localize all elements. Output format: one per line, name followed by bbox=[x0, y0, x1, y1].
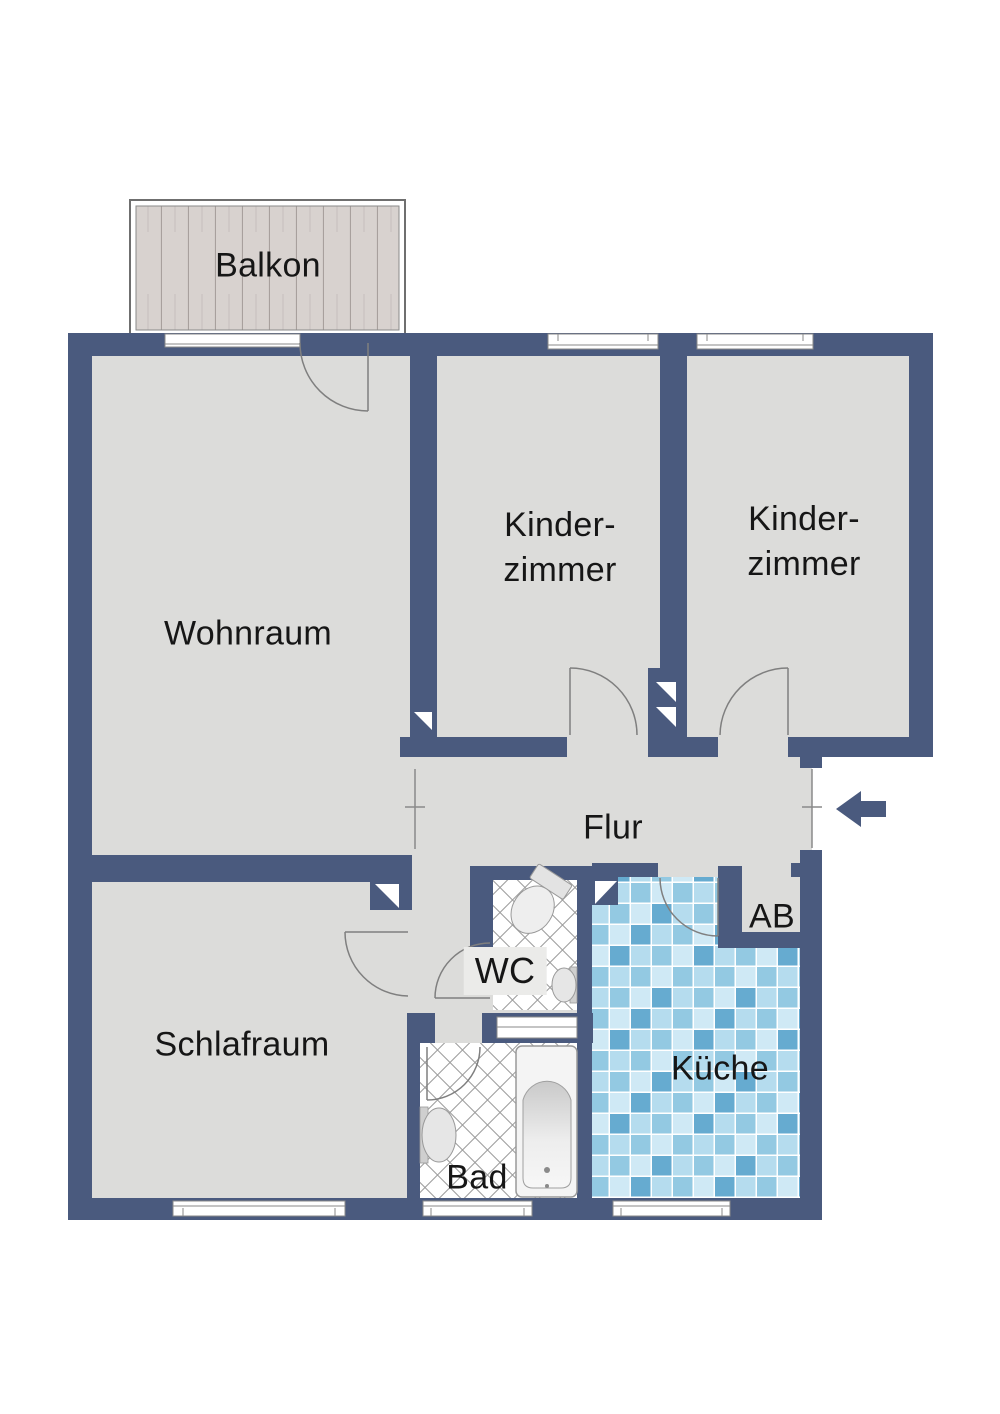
wall-ab-corner-stub bbox=[791, 863, 803, 877]
bathtub bbox=[516, 1046, 577, 1197]
label-kinderzimmer-mitte-line2: zimmer bbox=[503, 548, 616, 593]
window-kueche bbox=[613, 1201, 730, 1216]
floorplan-drawing bbox=[0, 0, 1000, 1414]
window-kinderzimmer2 bbox=[697, 334, 813, 349]
wall-wohnraum-right-foot bbox=[400, 737, 437, 757]
label-bad: Bad bbox=[446, 1159, 507, 1198]
label-balkon: Balkon bbox=[215, 247, 321, 286]
wall-outer-right-lower bbox=[800, 850, 822, 1220]
label-kinderzimmer-rechts-line2: zimmer bbox=[747, 542, 860, 587]
wall-between-kinderzimmer bbox=[660, 356, 687, 672]
wc-sink bbox=[552, 967, 577, 1003]
label-kinderzimmer-rechts-line1: Kinder- bbox=[747, 497, 860, 542]
wall-kinderzimmer1-bottom bbox=[437, 737, 567, 757]
entrance-arrow-icon bbox=[836, 791, 886, 827]
floorplan: Balkon Wohnraum Kinder- zimmer Kinder- z… bbox=[0, 0, 1000, 1414]
window-balkon bbox=[165, 334, 300, 347]
window-kinderzimmer1 bbox=[548, 334, 658, 349]
wall-kueche-top bbox=[592, 863, 658, 877]
window-wc-bad bbox=[497, 1017, 577, 1038]
label-wohnraum: Wohnraum bbox=[164, 615, 332, 654]
label-kueche: Küche bbox=[671, 1050, 769, 1089]
wall-schlafraum-door-pillar bbox=[370, 855, 412, 910]
wall-schlafraum-bad bbox=[407, 1043, 420, 1198]
label-schlafraum: Schlafraum bbox=[155, 1026, 330, 1065]
wall-outer-left bbox=[68, 333, 92, 1220]
wall-schlafraum-top bbox=[68, 855, 370, 882]
label-kinderzimmer-mitte: Kinder- zimmer bbox=[503, 503, 616, 593]
window-bad bbox=[423, 1201, 532, 1216]
label-wc: WC bbox=[464, 947, 547, 995]
wall-wc-kueche bbox=[577, 866, 592, 1198]
wall-ab-left bbox=[718, 866, 742, 940]
bad-sink bbox=[420, 1107, 456, 1163]
label-kinderzimmer-mitte-line1: Kinder- bbox=[503, 503, 616, 548]
wall-bad-top-left bbox=[407, 1013, 435, 1043]
window-schlafraum bbox=[173, 1201, 345, 1216]
label-abstellraum: AB bbox=[749, 898, 795, 937]
label-flur: Flur bbox=[583, 809, 643, 848]
wall-outer-right bbox=[909, 333, 933, 757]
wall-wohnraum-right bbox=[410, 356, 437, 757]
label-kinderzimmer-rechts: Kinder- zimmer bbox=[747, 497, 860, 587]
wall-flur-top-segment bbox=[687, 737, 718, 757]
wall-entry-stub-top bbox=[800, 737, 822, 768]
wall-wc-left bbox=[470, 866, 493, 947]
